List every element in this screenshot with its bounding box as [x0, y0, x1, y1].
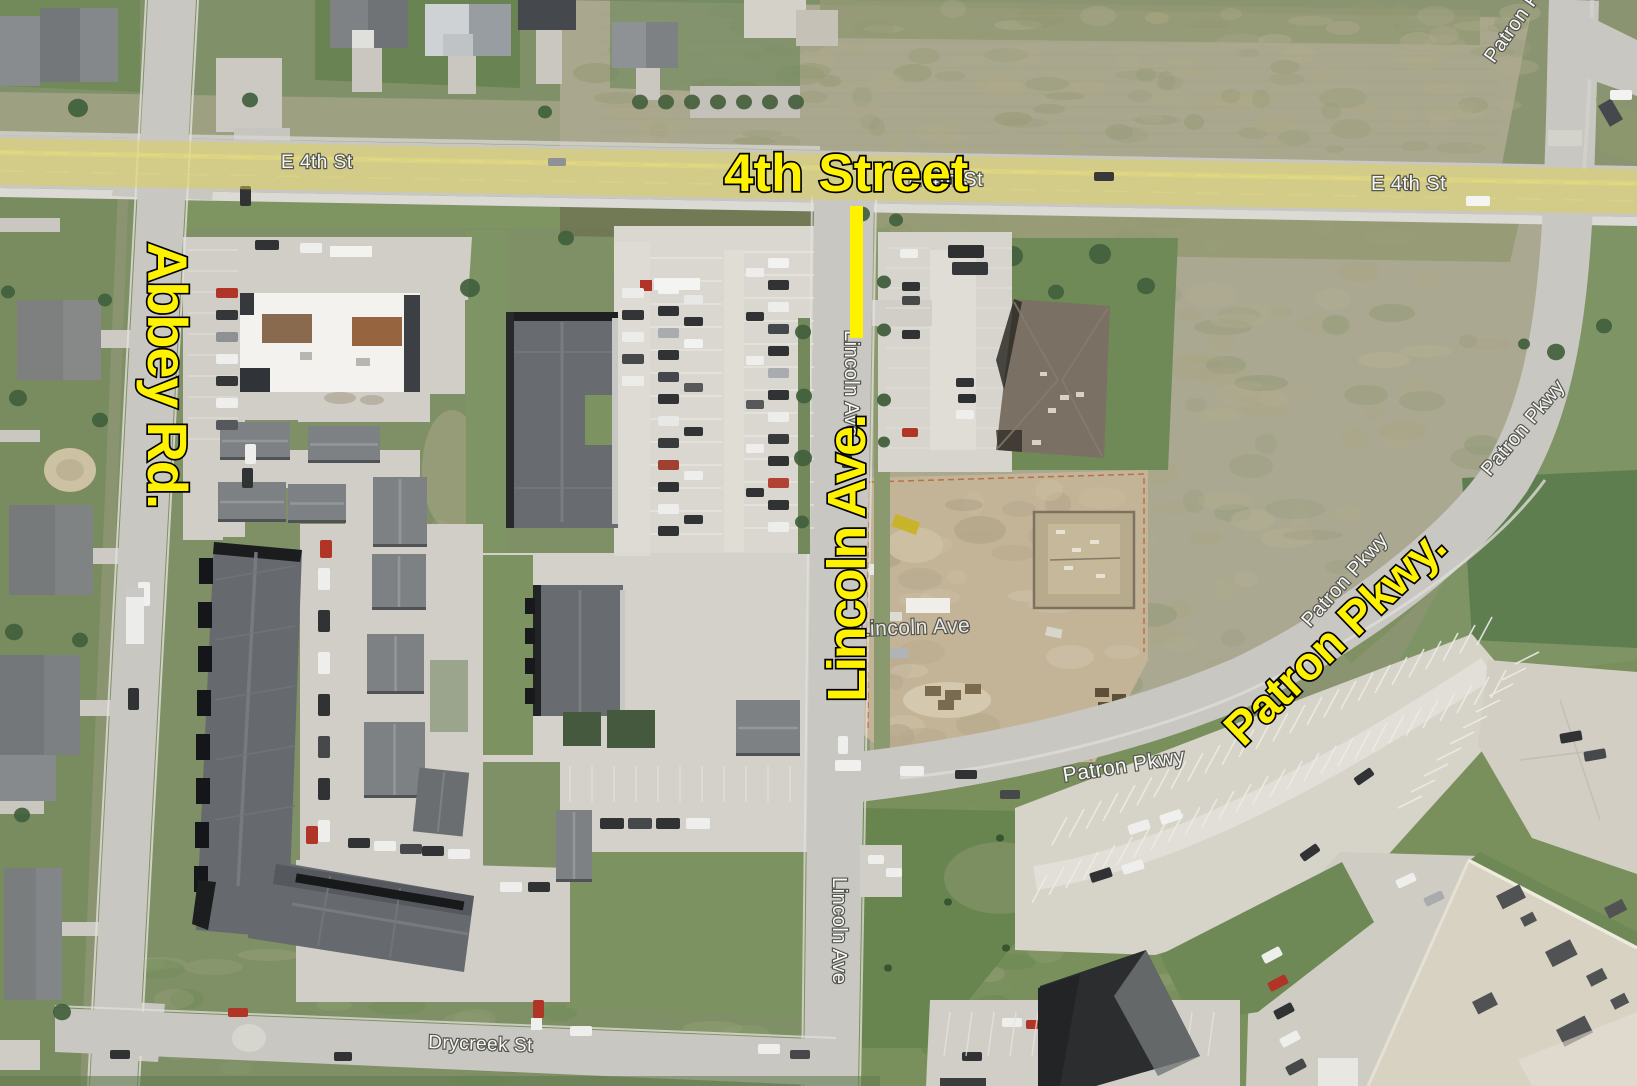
- svg-text:Lincoln Ave: Lincoln Ave: [828, 877, 850, 984]
- svg-text:Drycreek St: Drycreek St: [428, 1032, 534, 1057]
- svg-text:Abbey Rd.: Abbey Rd.: [136, 242, 199, 508]
- svg-text:Lincoln Ave.: Lincoln Ave.: [817, 416, 877, 702]
- svg-text:E 4th St: E 4th St: [281, 152, 353, 173]
- svg-text:E 4th St: E 4th St: [1371, 173, 1446, 195]
- svg-text:4th Street: 4th Street: [724, 144, 968, 203]
